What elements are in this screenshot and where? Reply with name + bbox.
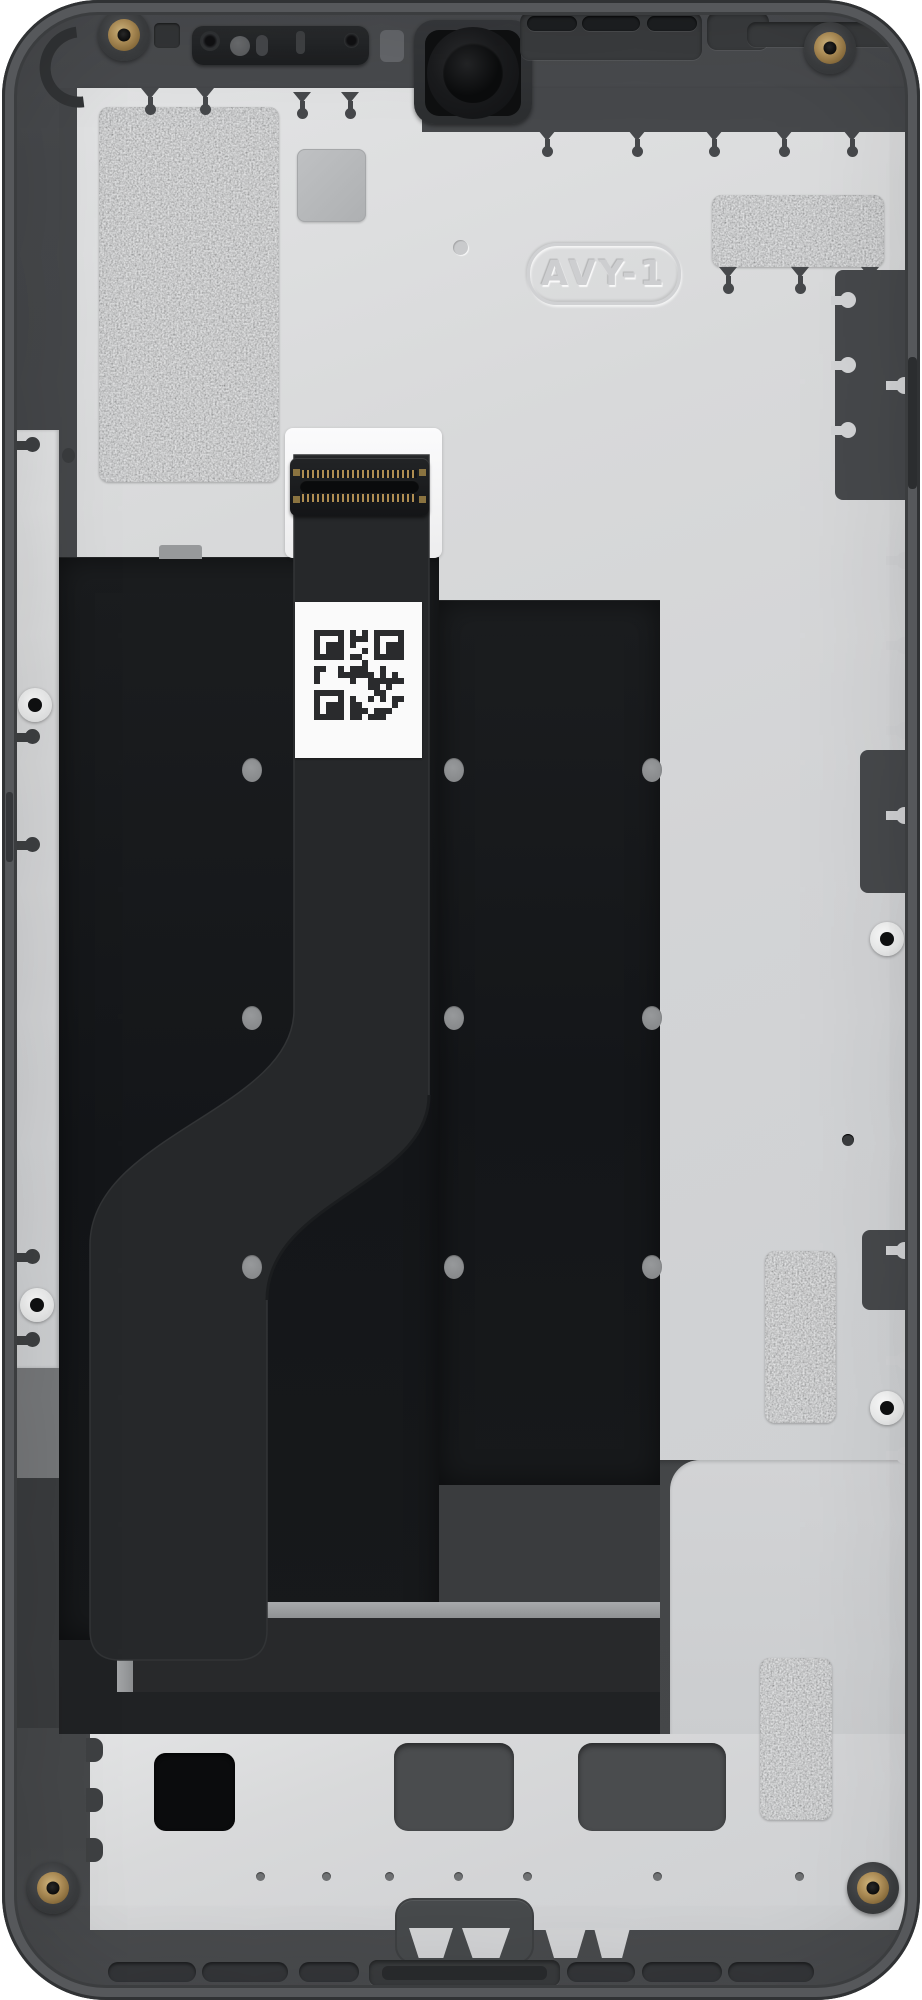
bottom-plate-hole (385, 1872, 394, 1881)
screw-hole (867, 1882, 880, 1895)
panel-alignment-dot (642, 758, 662, 782)
screw-hole (824, 42, 837, 55)
bottom-rim-slot (299, 1962, 359, 1982)
qr-module (398, 678, 404, 684)
bottom-cutout-mid (394, 1743, 514, 1831)
white-screw-boss (870, 1391, 904, 1425)
bottom-plate-hole (795, 1872, 804, 1881)
phone-chassis: AVY-1 (2, 0, 920, 2000)
gold-screw (847, 1862, 899, 1914)
bottom-rim-slot (202, 1962, 288, 1982)
panel-alignment-dot (642, 1006, 662, 1030)
connector-pad (293, 469, 300, 476)
earpiece-slot (256, 35, 268, 56)
connector-pad (419, 496, 426, 503)
connector-pad (419, 469, 426, 476)
proximity-sensor-icon (202, 33, 218, 49)
left-edge-seam (6, 792, 13, 862)
bottom-plate-notch (86, 1788, 103, 1812)
qr-module (380, 714, 386, 720)
panel-alignment-dot (444, 1255, 464, 1279)
panel-alignment-dot (242, 1255, 262, 1279)
board-connector (290, 458, 429, 516)
notch-spacer (380, 30, 404, 62)
connector-pad (293, 496, 300, 503)
bottom-rim-slot (108, 1962, 196, 1982)
panel-alignment-dot (642, 1255, 662, 1279)
boss-hole (28, 698, 42, 712)
mic-hole-icon (344, 33, 359, 48)
qr-module (314, 678, 320, 684)
white-screw-boss (18, 688, 52, 722)
sensor-window-icon (230, 36, 250, 56)
qr-module (386, 708, 392, 714)
panel-alignment-dot (444, 758, 464, 782)
connector-pin-row-bottom (302, 494, 417, 502)
bottom-cutout-black (154, 1753, 235, 1831)
boss-hole (30, 1298, 44, 1312)
qr-code (314, 630, 404, 720)
boss-hole (880, 932, 894, 946)
speaker-grille-slot (647, 16, 697, 31)
qr-module (320, 666, 326, 672)
qr-module (392, 702, 398, 708)
screw-hole (118, 29, 131, 42)
qr-module (356, 714, 362, 720)
qr-code-sticker (295, 602, 422, 758)
qr-module (338, 714, 344, 720)
bottom-plate-hole (256, 1872, 265, 1881)
qr-module (362, 648, 368, 654)
panel-alignment-dot (242, 1006, 262, 1030)
bottom-rim-slot (567, 1962, 635, 1982)
panel-alignment-dot (242, 758, 262, 782)
qr-module (386, 684, 392, 690)
qr-module (368, 696, 374, 702)
connector-pin-row-top (302, 470, 417, 478)
product-photo-canvas: AVY-1 (0, 0, 922, 2000)
qr-module (350, 642, 356, 648)
charging-port-slot (382, 1966, 547, 1980)
qr-module (398, 696, 404, 702)
earpiece-sensor-assembly (192, 25, 369, 65)
bottom-plate-hole (523, 1872, 532, 1881)
qr-module (398, 654, 404, 660)
screw-hole (47, 1882, 60, 1895)
bottom-plate-hole (322, 1872, 331, 1881)
front-camera-module (414, 20, 532, 124)
earpiece-slot (296, 31, 305, 54)
emi-foil-right-lower (760, 1658, 832, 1820)
bottom-plate-hole (454, 1872, 463, 1881)
speaker-grille-slot (527, 16, 577, 31)
bottom-plate-notch (86, 1838, 103, 1862)
gold-screw (27, 1862, 79, 1914)
qr-module (362, 636, 368, 642)
boss-hole (880, 1401, 894, 1415)
front-camera-lens (443, 43, 503, 103)
bottom-plate-notch (86, 1738, 103, 1762)
bottom-rim-slot (728, 1962, 814, 1982)
side-button-seam (908, 357, 917, 489)
bottom-plate-hole (653, 1872, 662, 1881)
gold-screw (804, 22, 856, 74)
panel-alignment-dot (444, 1006, 464, 1030)
qr-module (350, 678, 356, 684)
qr-module (338, 654, 344, 660)
white-screw-boss (870, 922, 904, 956)
bottom-cutout-right (578, 1743, 726, 1831)
white-screw-boss (20, 1288, 54, 1322)
bottom-rim-slot (642, 1962, 722, 1982)
speaker-grille-slot (582, 16, 640, 31)
qr-module (380, 696, 386, 702)
connector-center-slot (300, 480, 419, 493)
gold-screw (98, 9, 150, 61)
